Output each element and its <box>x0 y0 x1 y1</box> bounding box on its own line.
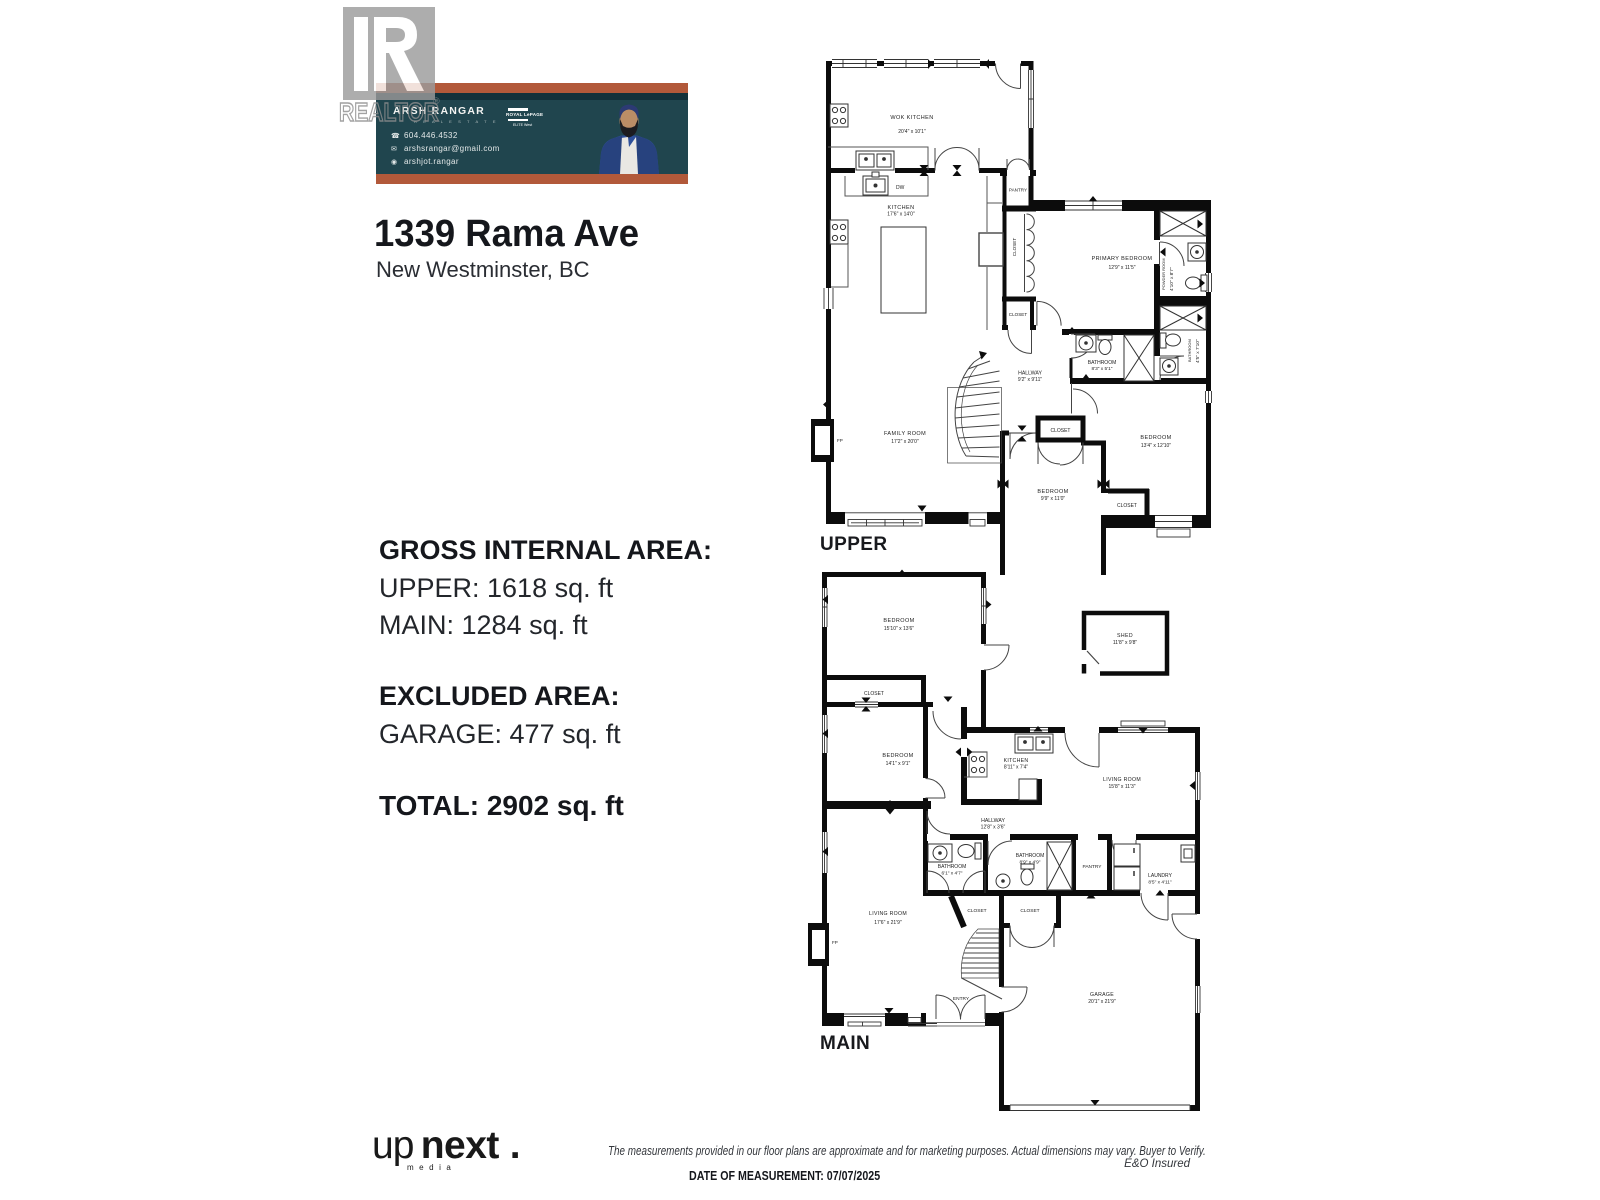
svg-text:8'5" x 4'11": 8'5" x 4'11" <box>1148 880 1172 886</box>
svg-text:20'1" x 21'9": 20'1" x 21'9" <box>1088 999 1116 1005</box>
svg-text:8'11" x 7'4": 8'11" x 7'4" <box>1004 765 1028 771</box>
svg-text:17'6" x 14'0": 17'6" x 14'0" <box>887 212 915 218</box>
svg-text:PANTRY: PANTRY <box>1009 188 1027 193</box>
svg-text:9'2" x 9'11": 9'2" x 9'11" <box>1018 377 1042 383</box>
svg-text:15'8" x 11'3": 15'8" x 11'3" <box>1108 784 1135 790</box>
svg-text:FP: FP <box>832 940 838 945</box>
svg-text:KITCHEN: KITCHEN <box>888 205 915 211</box>
svg-text:12'9" x 11'5": 12'9" x 11'5" <box>1108 265 1135 271</box>
svg-text:BATHROOM: BATHROOM <box>1187 339 1192 362</box>
svg-text:HALLWAY: HALLWAY <box>1018 371 1042 377</box>
svg-text:CLOSET: CLOSET <box>864 691 884 697</box>
svg-text:LIVING ROOM: LIVING ROOM <box>1103 777 1141 783</box>
svg-text:ENTRY: ENTRY <box>953 996 970 1002</box>
svg-text:CLOSET: CLOSET <box>1020 908 1039 914</box>
svg-text:8'3" x 5'1": 8'3" x 5'1" <box>1092 366 1113 372</box>
svg-text:8'9" x 4'9": 8'9" x 4'9" <box>1020 860 1041 866</box>
svg-text:CLOSET: CLOSET <box>1012 238 1017 257</box>
svg-text:POWDER ROOM: POWDER ROOM <box>1161 258 1166 290</box>
svg-text:13'4" x 12'10": 13'4" x 12'10" <box>1141 443 1171 449</box>
svg-text:BATHROOM: BATHROOM <box>1016 853 1045 859</box>
svg-text:17'2" x 20'0": 17'2" x 20'0" <box>891 439 919 445</box>
svg-text:PANTRY: PANTRY <box>1082 864 1102 870</box>
svg-text:CLOSET: CLOSET <box>967 908 986 914</box>
svg-text:BEDROOM: BEDROOM <box>1037 489 1068 495</box>
svg-text:BEDROOM: BEDROOM <box>883 618 914 624</box>
svg-text:FP: FP <box>837 438 843 443</box>
svg-text:20'4" x 10'1": 20'4" x 10'1" <box>898 129 926 135</box>
svg-text:9'9" x 11'0": 9'9" x 11'0" <box>1041 496 1065 502</box>
svg-text:PRIMARY BEDROOM: PRIMARY BEDROOM <box>1092 256 1153 262</box>
svg-text:REALTOR: REALTOR <box>339 97 439 127</box>
svg-text:4'10" x 8'7": 4'10" x 8'7" <box>1169 267 1175 291</box>
svg-text:HALLWAY: HALLWAY <box>981 818 1005 824</box>
svg-text:CLOSET: CLOSET <box>1009 312 1028 317</box>
svg-text:SHED: SHED <box>1117 633 1133 639</box>
svg-text:DW: DW <box>896 185 905 191</box>
svg-text:17'6" x 21'9": 17'6" x 21'9" <box>874 920 902 926</box>
svg-text:BEDROOM: BEDROOM <box>1140 435 1171 441</box>
svg-text:11'8" x 9'8": 11'8" x 9'8" <box>1113 640 1137 646</box>
svg-text:BEDROOM: BEDROOM <box>882 753 913 759</box>
svg-text:12'8" x 3'6": 12'8" x 3'6" <box>981 825 1006 831</box>
svg-text:BATHROOM: BATHROOM <box>1088 360 1117 366</box>
svg-text:6'1" x 4'7": 6'1" x 4'7" <box>942 871 963 877</box>
svg-text:15'10" x 13'6": 15'10" x 13'6" <box>884 626 914 632</box>
svg-text:4'5" x 7'10": 4'5" x 7'10" <box>1195 339 1201 363</box>
svg-text:BATHROOM: BATHROOM <box>938 864 967 870</box>
svg-text:CLOSET: CLOSET <box>1050 428 1070 434</box>
svg-text:GARAGE: GARAGE <box>1090 992 1114 998</box>
svg-text:WOK KITCHEN: WOK KITCHEN <box>890 115 933 121</box>
svg-text:14'1" x 9'1": 14'1" x 9'1" <box>886 761 911 767</box>
svg-text:LIVING ROOM: LIVING ROOM <box>869 911 907 917</box>
svg-text:®: ® <box>433 96 440 106</box>
svg-text:FAMILY ROOM: FAMILY ROOM <box>884 431 926 437</box>
svg-text:KITCHEN: KITCHEN <box>1004 758 1029 764</box>
svg-text:LAUNDRY: LAUNDRY <box>1148 873 1172 879</box>
svg-text:CLOSET: CLOSET <box>1117 503 1137 509</box>
